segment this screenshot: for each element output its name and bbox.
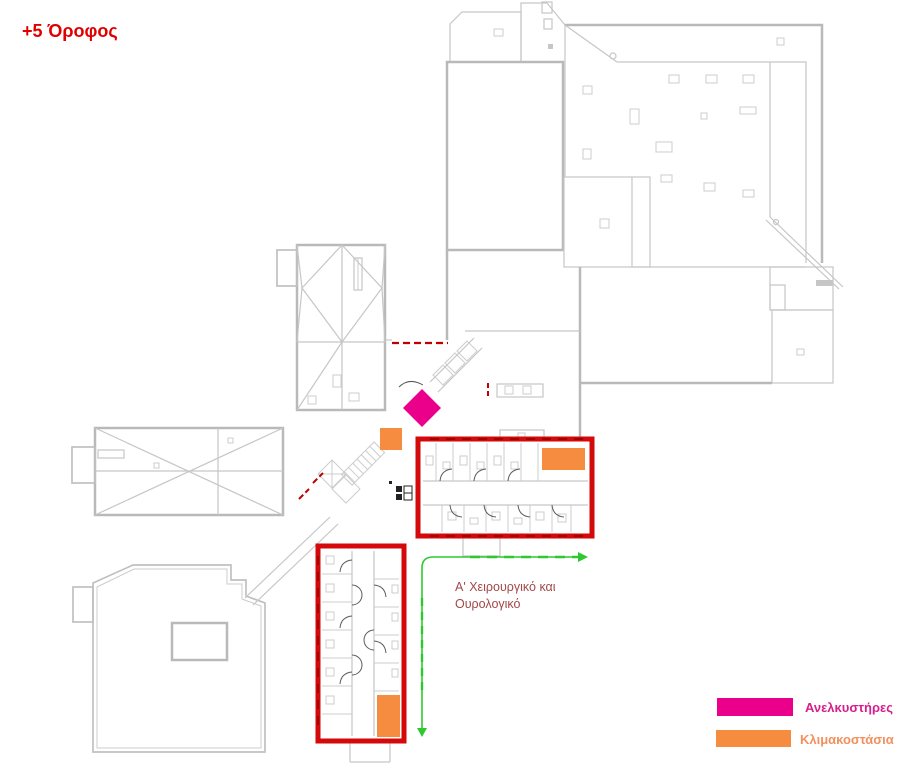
legend: Ανελκυστήρες Κλιμακοστάσια [716,698,894,747]
area-label-line2: Ουρολογικό [455,597,521,611]
ward-zone-upper [418,439,592,536]
area-label-line1: Α' Χειρουργικό και [455,580,556,594]
northwest-mid-building [277,245,385,410]
elevator-marker [403,389,441,427]
stair-treads [341,442,384,485]
route-arrow-south [417,728,427,737]
legend-label-staircases: Κλιμακοστάσια [800,732,894,747]
staircase-marker-central [380,428,402,450]
roof-building-northeast [447,2,843,437]
staircase-marker-upper-ward [542,448,585,470]
legend-swatch-elevators [717,698,793,716]
ward-zone-lower [318,546,404,741]
page-title: +5 Όροφος [22,21,118,41]
route-arrow-east [578,552,588,562]
southwest-building [73,565,265,752]
staircase-marker-lower-ward [377,695,400,737]
floor-plan-page: +5 Όροφος Α' Χειρουργικό και Ουρολογικό … [0,0,906,771]
area-label: Α' Χειρουργικό και Ουρολογικό [455,580,556,611]
west-wing-roof [72,428,283,515]
floor-plan-canvas: +5 Όροφος Α' Χειρουργικό και Ουρολογικό … [0,0,906,771]
legend-label-elevators: Ανελκυστήρες [805,700,893,715]
legend-swatch-staircases [716,730,791,747]
